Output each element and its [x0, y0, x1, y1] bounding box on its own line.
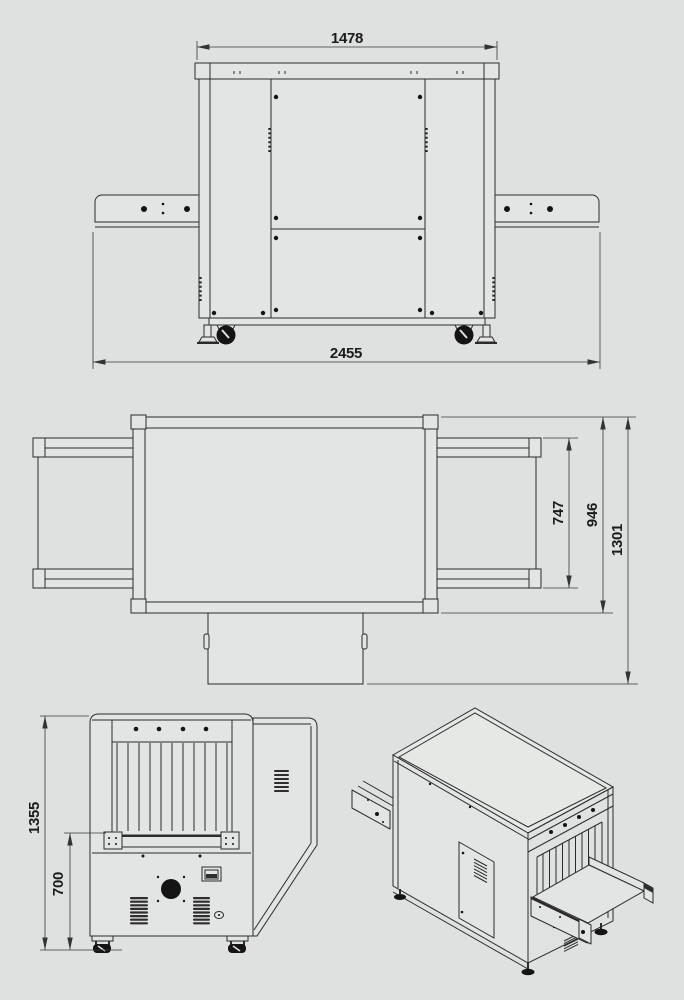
caster-wheel-left — [217, 325, 236, 345]
plan-scanner-body — [131, 415, 438, 613]
belt-assembly — [104, 832, 239, 849]
dim-overall-depth-label: 1301 — [609, 524, 626, 556]
dim-conveyor-width: 747 — [543, 438, 578, 588]
dim-conveyor-width-label: 747 — [550, 501, 567, 525]
end-face — [90, 714, 253, 936]
isometric-view — [352, 708, 653, 975]
corner-post — [423, 415, 438, 429]
caster-left-end — [92, 936, 113, 953]
cable-gland — [161, 879, 181, 899]
base-bar — [209, 318, 485, 325]
iso-foot-front — [522, 963, 535, 975]
dim-belt-height-label: 700 — [50, 872, 67, 896]
leveling-foot-left — [197, 325, 219, 343]
left-conveyor-guard — [95, 195, 199, 227]
drawing-canvas: 1478 — [0, 0, 684, 1000]
side-panel — [253, 718, 317, 936]
top-plan-view: 747 946 1301 — [33, 415, 638, 684]
operator-console — [204, 611, 367, 684]
iso-entry-conveyor — [352, 781, 393, 829]
corner-post — [131, 415, 146, 429]
dim-body-depth-label: 946 — [584, 503, 601, 527]
corner-post — [423, 599, 438, 613]
plan-left-conveyor — [33, 438, 133, 588]
dim-top-width-label: 1478 — [331, 30, 363, 47]
corner-post — [131, 599, 146, 613]
scanner-body-front — [195, 63, 499, 325]
right-conveyor-guard — [495, 195, 599, 227]
caster-wheel-right — [455, 325, 474, 345]
dim-top-width: 1478 — [197, 30, 497, 60]
scanner-dimensional-drawing: 1478 — [0, 0, 684, 1000]
leveling-foot-right — [475, 325, 497, 343]
front-elevation-view: 1478 — [93, 30, 600, 369]
dim-overall-height-label: 1355 — [26, 802, 43, 834]
end-elevation-view: 1355 700 — [26, 714, 317, 953]
top-cap — [195, 63, 499, 79]
dim-overall-length-label: 2455 — [330, 345, 362, 362]
caster-right-end — [227, 936, 248, 953]
power-inlet — [202, 867, 221, 881]
plan-right-conveyor — [437, 438, 541, 588]
